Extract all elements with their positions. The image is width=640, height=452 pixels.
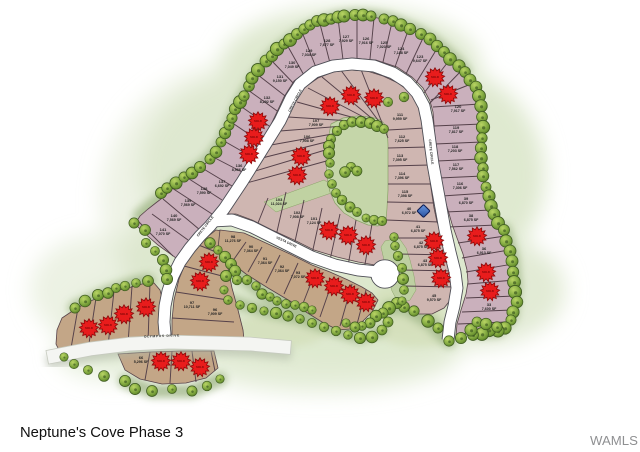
svg-text:7,306 SF: 7,306 SF bbox=[453, 186, 468, 190]
svg-text:WAMLS: WAMLS bbox=[590, 433, 638, 448]
svg-text:6,972 SF: 6,972 SF bbox=[402, 211, 417, 215]
svg-text:6,875 SF: 6,875 SF bbox=[414, 245, 429, 249]
svg-text:6,875 SF: 6,875 SF bbox=[418, 263, 433, 267]
svg-text:7,909 SF: 7,909 SF bbox=[208, 312, 223, 316]
svg-text:7,398 SF: 7,398 SF bbox=[398, 194, 413, 198]
svg-text:7,817 SF: 7,817 SF bbox=[449, 130, 464, 134]
svg-text:7,909 SF: 7,909 SF bbox=[309, 123, 324, 127]
svg-text:7,364 SF: 7,364 SF bbox=[258, 261, 273, 265]
svg-text:7,569 SF: 7,569 SF bbox=[181, 203, 196, 207]
svg-text:7,034 SF: 7,034 SF bbox=[302, 53, 317, 57]
svg-text:7,917 SF: 7,917 SF bbox=[451, 109, 466, 113]
svg-text:7,590 SF: 7,590 SF bbox=[197, 191, 212, 195]
svg-text:11,276 SF: 11,276 SF bbox=[225, 239, 242, 243]
svg-text:7,929 SF: 7,929 SF bbox=[339, 39, 354, 43]
svg-text:7,562 SF: 7,562 SF bbox=[449, 167, 464, 171]
svg-text:7,049 SF: 7,049 SF bbox=[285, 65, 300, 69]
svg-text:7,072 SF: 7,072 SF bbox=[291, 275, 306, 279]
svg-text:7,188 SF: 7,188 SF bbox=[394, 51, 409, 55]
svg-text:10,711 SF: 10,711 SF bbox=[184, 305, 201, 309]
svg-text:8,966 SF: 8,966 SF bbox=[232, 168, 247, 172]
svg-text:7,908 SF: 7,908 SF bbox=[300, 139, 315, 143]
svg-text:11,024 SF: 11,024 SF bbox=[271, 202, 288, 206]
svg-text:6,870 SF: 6,870 SF bbox=[459, 201, 474, 205]
svg-text:9,150 SF: 9,150 SF bbox=[273, 79, 288, 83]
svg-text:7,070 SF: 7,070 SF bbox=[156, 232, 171, 236]
svg-text:7,916 SF: 7,916 SF bbox=[359, 41, 374, 45]
svg-text:7,364 SF: 7,364 SF bbox=[275, 269, 290, 273]
svg-text:7,569 SF: 7,569 SF bbox=[167, 218, 182, 222]
svg-text:6,875 SF: 6,875 SF bbox=[411, 229, 426, 233]
svg-text:7,600 SF: 7,600 SF bbox=[482, 307, 497, 311]
svg-text:9,647 SF: 9,647 SF bbox=[413, 59, 428, 63]
svg-text:6,692 SF: 6,692 SF bbox=[215, 184, 230, 188]
svg-text:Neptune's Cove Phase 3: Neptune's Cove Phase 3 bbox=[20, 425, 183, 441]
svg-text:8,292 SF: 8,292 SF bbox=[260, 100, 275, 104]
svg-text:6,913 SF: 6,913 SF bbox=[477, 251, 492, 255]
svg-text:7,124 SF: 7,124 SF bbox=[307, 221, 322, 225]
svg-text:7,395 SF: 7,395 SF bbox=[393, 158, 408, 162]
svg-text:7,908 SF: 7,908 SF bbox=[290, 215, 305, 219]
svg-text:7,203 SF: 7,203 SF bbox=[448, 149, 463, 153]
svg-text:9,570 SF: 9,570 SF bbox=[427, 298, 442, 302]
svg-text:6,875 SF: 6,875 SF bbox=[464, 218, 479, 222]
svg-text:7,625 SF: 7,625 SF bbox=[395, 139, 410, 143]
svg-text:5,296 SF: 5,296 SF bbox=[134, 360, 149, 364]
svg-text:7,364 SF: 7,364 SF bbox=[244, 249, 259, 253]
svg-text:7,396 SF: 7,396 SF bbox=[395, 176, 410, 180]
svg-text:7,677 SF: 7,677 SF bbox=[320, 43, 335, 47]
svg-text:9,959 SF: 9,959 SF bbox=[393, 117, 408, 121]
svg-text:7,023 SF: 7,023 SF bbox=[377, 45, 392, 49]
